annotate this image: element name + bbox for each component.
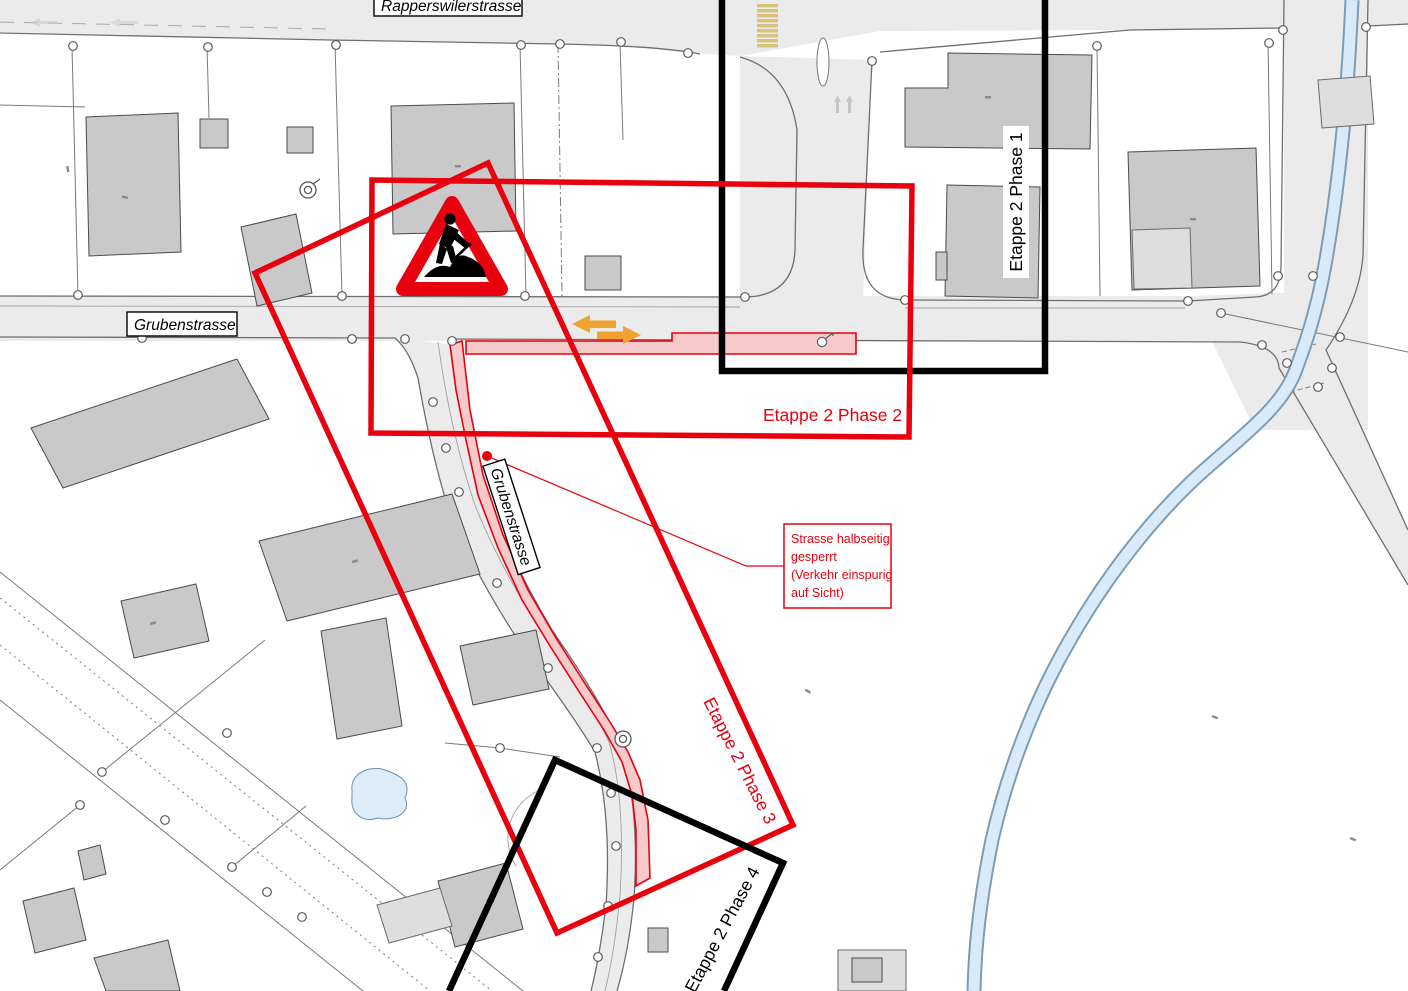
phase-2-label: Etappe 2 Phase 2 xyxy=(760,402,902,427)
svg-text:Etappe 2 Phase 2: Etappe 2 Phase 2 xyxy=(763,405,902,425)
traffic-island xyxy=(817,38,829,86)
map-svg: Strasse halbseitig gesperrt (Verkehr ein… xyxy=(0,0,1408,991)
phase-overlays-layer: Strasse halbseitig gesperrt (Verkehr ein… xyxy=(255,0,1045,991)
crosswalk-icon xyxy=(757,4,778,47)
roads-layer xyxy=(0,0,1408,991)
pond xyxy=(352,768,407,819)
survey-flag-icon xyxy=(300,179,320,198)
street-label-grubenstrasse: Grubenstrasse xyxy=(127,312,237,336)
street-label-rapperswilerstrasse: Rapperswilerstrasse xyxy=(374,0,522,16)
phase-1-label: Etappe 2 Phase 1 xyxy=(1003,126,1029,278)
site-plan-canvas: Strasse halbseitig gesperrt (Verkehr ein… xyxy=(0,0,1408,991)
svg-text:Etappe 2 Phase 1: Etappe 2 Phase 1 xyxy=(1006,132,1026,271)
svg-text:Grubenstrasse: Grubenstrasse xyxy=(134,317,236,334)
svg-text:Rapperswilerstrasse: Rapperswilerstrasse xyxy=(381,0,522,15)
buildings-layer xyxy=(23,53,1374,991)
